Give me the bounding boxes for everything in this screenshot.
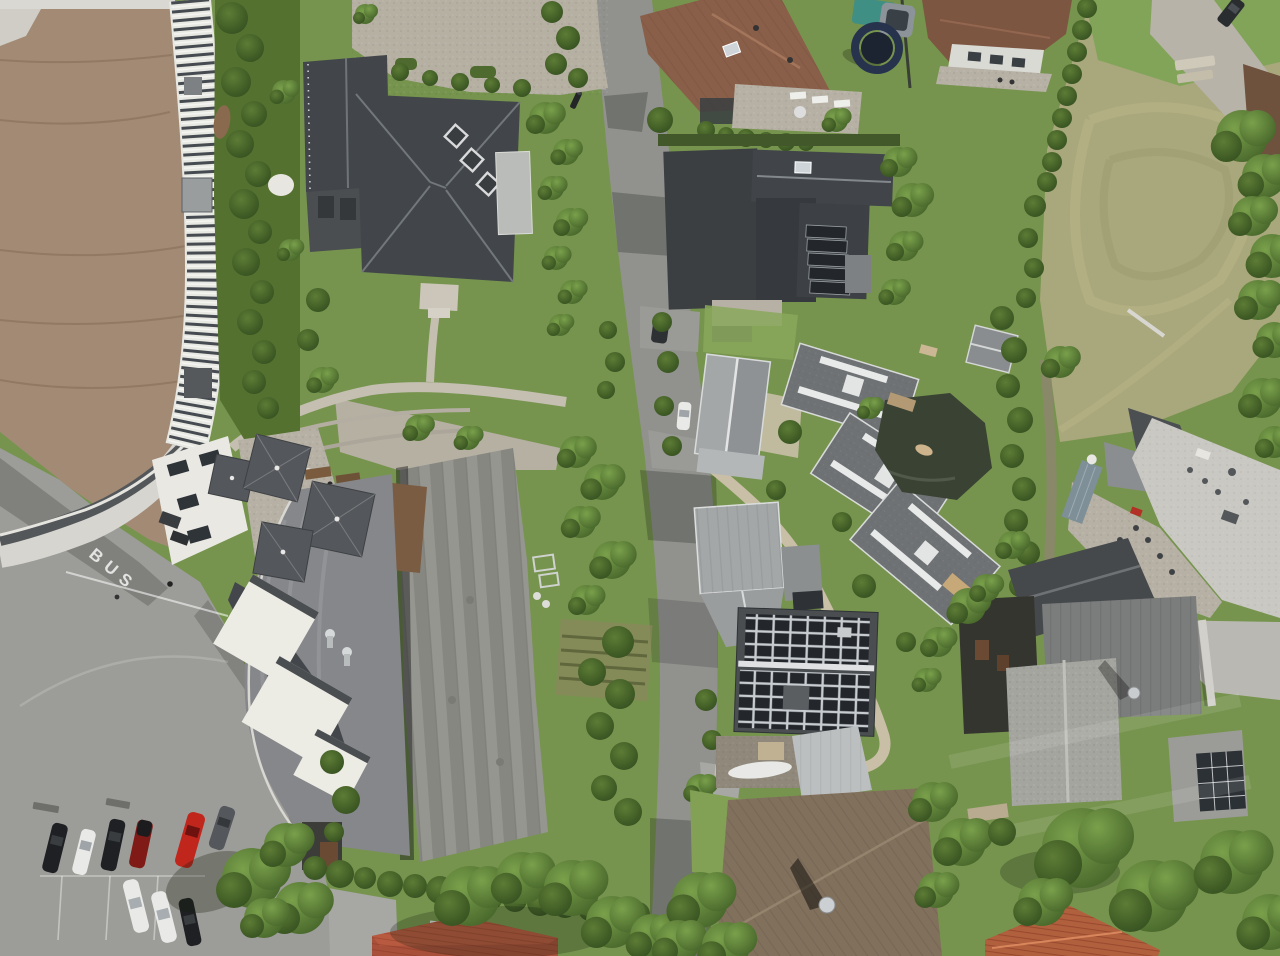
aerial-photo: BUS <box>0 0 1280 956</box>
roof-box <box>184 77 202 95</box>
patio-parasol <box>794 106 806 118</box>
aerial-scene: BUS <box>0 0 1280 956</box>
patio-furniture <box>998 78 1003 83</box>
house-c-driveway <box>640 306 700 352</box>
house-c-hedge <box>658 134 900 146</box>
patio-furniture <box>1010 80 1015 85</box>
solar-panel-column <box>806 225 851 295</box>
pergola <box>700 98 734 124</box>
chimney <box>787 57 793 63</box>
stair-tower <box>182 178 212 212</box>
roof-structure <box>184 368 212 398</box>
skylight <box>795 162 811 174</box>
solar-house <box>716 608 878 800</box>
chimney <box>819 897 835 913</box>
chimney <box>753 25 759 31</box>
house-d <box>692 354 776 480</box>
barn-door <box>975 640 989 660</box>
pedestrian <box>115 595 120 600</box>
arena-top-trim <box>0 0 175 9</box>
roof-vent <box>466 596 474 604</box>
solar-gap <box>783 685 810 710</box>
villa-annex-flat-roof <box>496 151 533 234</box>
garage-door <box>340 198 356 220</box>
small-deck <box>758 742 784 760</box>
bin <box>542 600 550 608</box>
trampoline-mat <box>861 32 893 64</box>
house-c-annex <box>845 255 871 293</box>
garden-tent <box>268 174 294 196</box>
car-white-street <box>676 401 691 430</box>
arena-green-band <box>211 0 304 452</box>
house-b <box>922 0 1072 92</box>
garage-door <box>318 196 334 218</box>
pedestrian <box>167 581 173 587</box>
roof-vent <box>496 758 504 766</box>
bin <box>533 592 541 600</box>
vegetable-garden <box>555 619 652 701</box>
chimney <box>1128 687 1140 699</box>
roof-vent <box>448 696 456 704</box>
parasol <box>253 522 313 582</box>
solar-panel <box>792 590 823 610</box>
entrance-steps <box>428 308 450 318</box>
solar-array-upper <box>744 614 870 668</box>
roof-vent-box <box>837 627 851 637</box>
house-c-left-roof <box>663 148 762 309</box>
villa-entrance <box>419 283 458 311</box>
